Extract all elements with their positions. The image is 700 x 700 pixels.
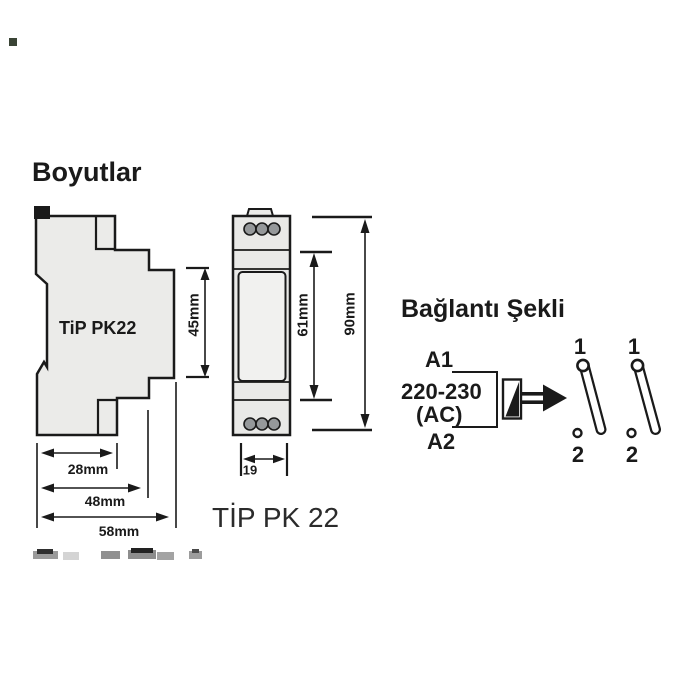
voltage-label: 220-230: [401, 381, 482, 403]
connection-section-title: Bağlantı Şekli: [401, 297, 565, 322]
dim-19-label: 19: [243, 464, 257, 477]
contact-2-symbol: [628, 360, 656, 437]
terminal-a2-label: A2: [427, 431, 455, 453]
technical-drawing: [0, 0, 700, 700]
contact-1-pivot: [577, 360, 588, 371]
print-artifact-square: [9, 38, 17, 46]
contact-2-terminal: [628, 429, 636, 437]
current-type-label: (AC): [416, 404, 462, 426]
actuation-arrow: [521, 385, 567, 412]
dimensions-section-title: Boyutlar: [32, 159, 142, 186]
terminal-a1-label: A1: [425, 349, 453, 371]
contact-1-bottom-label: 2: [572, 444, 584, 466]
datasheet-page: Boyutlar TiP PK22 45mm 61mm 90mm 28mm 48…: [0, 0, 700, 700]
smudged-text-row: [33, 548, 202, 560]
dim-58mm-label: 58mm: [99, 524, 139, 538]
front-window: [239, 272, 286, 381]
side-view-model-label: TiP PK22: [59, 319, 136, 337]
contact-1-symbol: [574, 360, 602, 437]
dim-48mm-label: 48mm: [85, 494, 125, 508]
dim-61mm-label: 61mm: [296, 293, 311, 336]
contact-1-terminal: [574, 429, 582, 437]
contact-1-top-label: 1: [574, 336, 586, 358]
contact-2-bottom-label: 2: [626, 444, 638, 466]
dim-45mm-label: 45mm: [187, 293, 202, 336]
terminal-screws-bottom: [244, 418, 280, 430]
contact-2-top-label: 1: [628, 336, 640, 358]
dim-28mm-label: 28mm: [68, 462, 108, 476]
model-caption: TİP PK 22: [212, 504, 339, 532]
contact-2-pivot: [632, 360, 643, 371]
dim-90mm-label: 90mm: [343, 292, 358, 335]
connection-schematic: [452, 360, 656, 437]
terminal-screws-top: [244, 223, 280, 235]
din-clip-square: [34, 206, 50, 219]
front-view-drawing: [233, 209, 290, 435]
